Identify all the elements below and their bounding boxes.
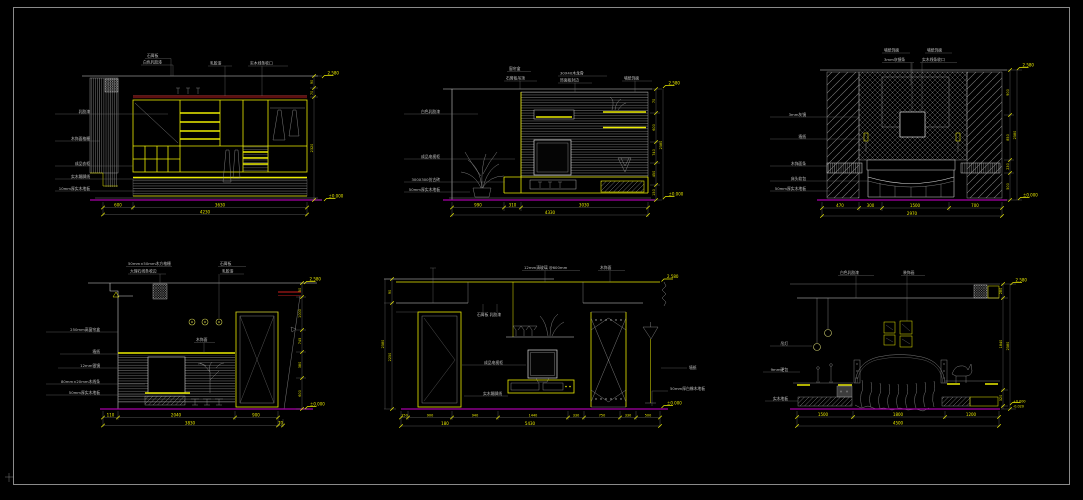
dim-v: 70 <box>652 99 656 103</box>
cad-drawing-canvas[interactable]: 600 3630 4230 90 70 2320 2.580 ±0.000 石膏… <box>0 0 1083 500</box>
dim-v-total: 2580 <box>381 340 385 349</box>
annotation: 3mm灰镜条 <box>884 57 905 62</box>
dim-total: 4500 <box>893 420 904 425</box>
pendant-lamps <box>814 298 832 351</box>
wall-lamps <box>189 319 222 325</box>
dim-v: 1000 <box>298 309 302 318</box>
annotation: 实木线条收口 <box>250 61 273 66</box>
dim: 1200 <box>966 412 977 417</box>
annotation: 床头软包 <box>791 176 806 181</box>
glassware-icons <box>176 88 200 93</box>
cad-sheet: 600 3630 4230 90 70 2320 2.580 ±0.000 石膏… <box>0 0 1083 500</box>
dim-v: 500 <box>1006 183 1010 189</box>
annotation: 窗帘盒 <box>509 66 521 71</box>
panel-wardrobe-elevation: 600 3630 4230 90 70 2320 2.580 ±0.000 石膏… <box>55 53 344 216</box>
level-marker: ±0.000 <box>667 401 682 406</box>
dim: 1800 <box>893 412 904 417</box>
dim-v: 320 <box>999 395 1003 401</box>
dim-v: 150 <box>652 189 656 195</box>
annotation: 墙纸饰面 <box>884 48 899 53</box>
annotation: 木饰面格栅 <box>71 136 90 141</box>
annotation: 木饰面条 <box>791 161 806 166</box>
annotation: 白色乳胶漆 <box>421 109 440 114</box>
annotation: 50mm厚实木地板 <box>409 187 440 192</box>
panel-living-tv-wall-elevation: 150 900 940 1440 330 750 330 500 180 543… <box>381 265 705 428</box>
annotation: 80mm×20mm木线条 <box>61 379 100 384</box>
annotation: 木饰面 <box>600 265 612 270</box>
dim-total: 3830 <box>185 420 196 425</box>
annotation: 吊灯 <box>780 341 788 346</box>
level-marker: 2.580 <box>328 71 340 76</box>
annotation: 乳胶漆 <box>210 61 222 66</box>
annotation: 300X300仿古砖 <box>412 177 441 182</box>
dim: 150 <box>401 413 407 417</box>
lattice-screen <box>591 312 626 407</box>
level-marker: -0.020 <box>1013 405 1024 409</box>
dim-total: 4330 <box>545 210 556 215</box>
tv-screen <box>534 140 571 175</box>
dim: 500 <box>645 413 651 417</box>
dim-v: 2320 <box>310 144 314 153</box>
tv-screen <box>528 350 557 378</box>
dim: 180 <box>441 421 449 426</box>
dim: 700 <box>971 203 979 208</box>
dim-v: 450 <box>652 171 656 177</box>
annotation: 250mm高窗帘盒 <box>70 327 100 332</box>
annotation: 墙纸 <box>92 349 100 354</box>
dim-total: 4230 <box>200 209 211 214</box>
annotation: 30X40木龙骨 <box>560 71 584 76</box>
bedside-cabinet <box>837 386 852 397</box>
level-marker: ±0.000 <box>310 402 325 407</box>
level-marker: 2.580 <box>669 81 681 86</box>
annotation: 实木踢脚线 <box>483 391 502 396</box>
level-marker: 2.580 <box>667 274 679 279</box>
wall-art-frames <box>884 321 912 347</box>
dim-v: 50 <box>298 288 302 292</box>
dim-v: 850 <box>1006 134 1010 140</box>
annotation: 10mm厚实木地板 <box>59 186 90 191</box>
dim: 1500 <box>910 203 921 208</box>
level-marker: ±0.000 <box>1013 400 1026 404</box>
annotation: 12mm银镜 <box>80 363 100 368</box>
dim-total: 5430 <box>525 421 536 426</box>
annotation: 墙纸 <box>798 134 806 139</box>
panel-tv-wall-elevation: 990 310 3030 4330 70 600 740 450 150 258… <box>404 66 684 217</box>
dim-v: 230 <box>1006 163 1010 169</box>
dim-v: 90 <box>310 80 314 84</box>
annotation: 大理石线条收边 <box>130 269 157 274</box>
dim: 70 <box>278 420 284 425</box>
dim-v: 380 <box>298 362 302 368</box>
shelf-decor <box>513 314 564 336</box>
dim-v: 600 <box>652 124 656 130</box>
dim-total: 2970 <box>907 211 918 216</box>
dim: 1440 <box>529 413 538 417</box>
dim-v: 745 <box>298 338 302 344</box>
annotation: 装饰画 <box>903 270 915 275</box>
annotation: 石膏板 乳胶漆 <box>477 312 501 317</box>
dim-v: 280 <box>999 288 1003 294</box>
level-marker: 2.580 <box>1023 63 1035 68</box>
annotation: 墙纸饰面 <box>624 76 639 81</box>
ucs-icon <box>5 473 14 482</box>
annotation: 实木踢脚线 <box>71 174 90 179</box>
annotation: 石膏板 <box>147 53 159 58</box>
annotation: 石膏板 <box>220 261 232 266</box>
dim-v: 600 <box>298 390 302 396</box>
annotation: 成品衣柜 <box>75 161 90 166</box>
floor-plant <box>461 152 504 197</box>
level-marker: ±0.000 <box>1023 193 1038 198</box>
dim: 900 <box>427 413 433 417</box>
annotation: 12mm清玻璃 @600mm <box>524 265 568 270</box>
dim-v: 740 <box>652 149 656 155</box>
dim-v-total: 2580 <box>659 141 663 150</box>
dim: 990 <box>474 202 482 207</box>
figurines <box>816 364 972 383</box>
dim: 600 <box>114 202 122 207</box>
panel-bedhead-wall-elevation: 470 300 1500 700 2970 900 850 230 500 25… <box>770 48 1038 218</box>
annotation: 乳胶漆 <box>222 269 234 274</box>
annotation: 实木地板 <box>773 396 788 401</box>
dim: 3630 <box>215 202 226 207</box>
wall-niche <box>900 112 925 137</box>
dim: 2040 <box>171 412 182 417</box>
annotation: 3mm灰镜 <box>789 112 807 117</box>
dim-v: 70 <box>310 91 314 95</box>
annotation: 50mm厚白橡木地板 <box>670 386 705 391</box>
dim-v-total: 2580 <box>1013 131 1017 140</box>
bed <box>854 355 947 412</box>
annotation: 成品电视柜 <box>484 360 503 365</box>
dim-v: 2250 <box>388 353 392 362</box>
level-marker: 2.580 <box>310 277 322 282</box>
annotation: 墙纸饰面 <box>927 48 942 53</box>
annotation: 9mm硬包 <box>771 367 789 372</box>
dim: 330 <box>625 413 631 417</box>
annotation: 成品电视柜 <box>421 154 440 159</box>
annotation: 木饰面 <box>196 337 208 342</box>
dim: 750 <box>599 413 605 417</box>
annotation: 乳胶漆 <box>79 109 91 114</box>
annotation: 50mm厚实木地板 <box>775 186 806 191</box>
dim: 310 <box>509 202 517 207</box>
annotation: 50mm×50mm木方格栅 <box>128 261 171 266</box>
annotation: 实木线条收口 <box>922 57 945 62</box>
dim: 110 <box>107 412 115 417</box>
annotation: 饰面板封边 <box>560 78 579 83</box>
dim: 330 <box>573 413 579 417</box>
dim: 940 <box>472 413 478 417</box>
dim-v-total: 2580 <box>1006 342 1010 351</box>
panel-dresser-wall-elevation: 110 2040 900 3830 70 50 1000 745 380 600… <box>46 261 325 427</box>
level-marker: 2.580 <box>1016 278 1028 283</box>
level-marker: ±0.000 <box>329 194 344 199</box>
dim: 3030 <box>579 202 590 207</box>
bed <box>867 160 955 197</box>
panel-bed-wall-elevation: 1500 1800 1200 4500 280 1840 320 2580 2.… <box>763 270 1027 428</box>
mirror <box>148 357 185 393</box>
dim-v: 90 <box>388 290 392 294</box>
break-line <box>662 282 666 306</box>
dim: 1500 <box>818 412 829 417</box>
annotation: 50mm厚实木地板 <box>69 390 100 395</box>
dim: 300 <box>867 203 875 208</box>
level-marker: ±0.000 <box>669 192 684 197</box>
annotation: 白色乳胶漆 <box>143 60 162 65</box>
annotation: 白色乳胶漆 <box>840 270 859 275</box>
dim-v: 900 <box>1006 89 1010 95</box>
dim: 900 <box>252 412 260 417</box>
annotation: 石膏板吊顶 <box>506 76 525 81</box>
dim: 470 <box>836 203 844 208</box>
annotation: 墙纸 <box>689 365 697 370</box>
dim-v: 1840 <box>999 340 1003 349</box>
